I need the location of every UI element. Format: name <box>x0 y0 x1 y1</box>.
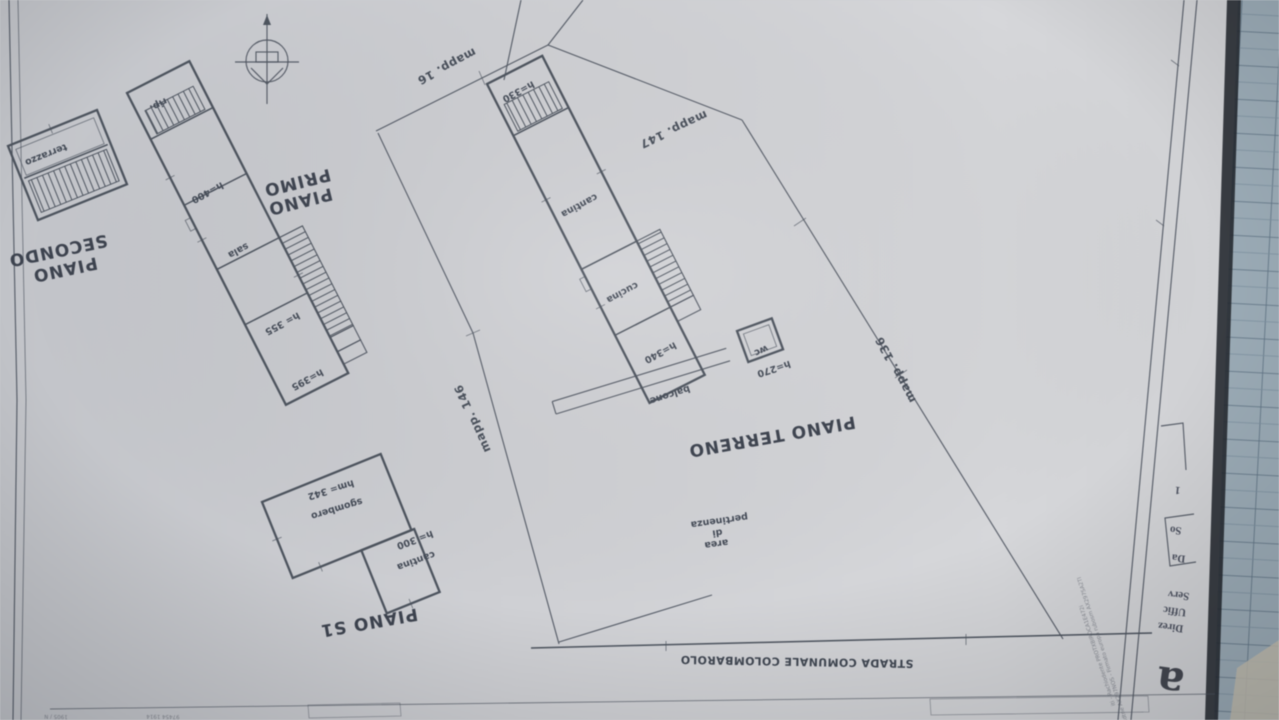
footer-fragment-1: 1905 / N <box>44 713 68 719</box>
stamp-box-da: Da <box>1171 551 1186 564</box>
stamp-box-so: So <box>1169 523 1182 536</box>
photo-of-cadastral-floor-plan: terrazzo SECONDO PIANO PRIMO PIANO rip. … <box>0 0 1279 720</box>
label-area-line2: di <box>712 526 723 538</box>
plan-sheet-canvas: terrazzo SECONDO PIANO PRIMO PIANO rip. … <box>0 0 1279 720</box>
footer-fragment-2: 97454 1914 <box>146 713 180 720</box>
